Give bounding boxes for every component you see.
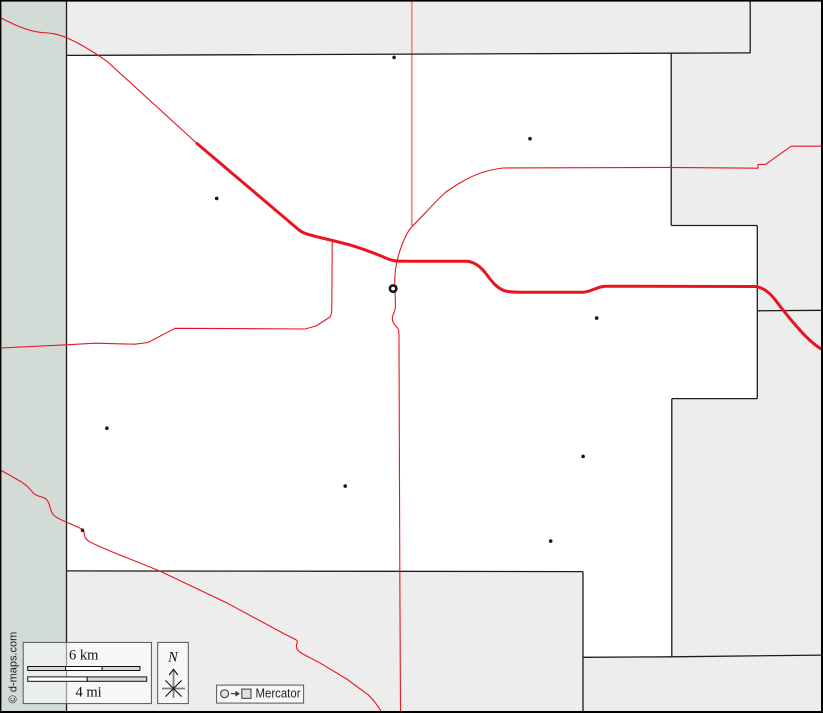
svg-text:© d-maps.com: © d-maps.com (8, 632, 20, 704)
svg-text:4 mi: 4 mi (76, 685, 102, 701)
svg-text:6 km: 6 km (69, 648, 99, 664)
svg-text:Mercator: Mercator (256, 686, 302, 701)
svg-text:N: N (167, 650, 179, 666)
